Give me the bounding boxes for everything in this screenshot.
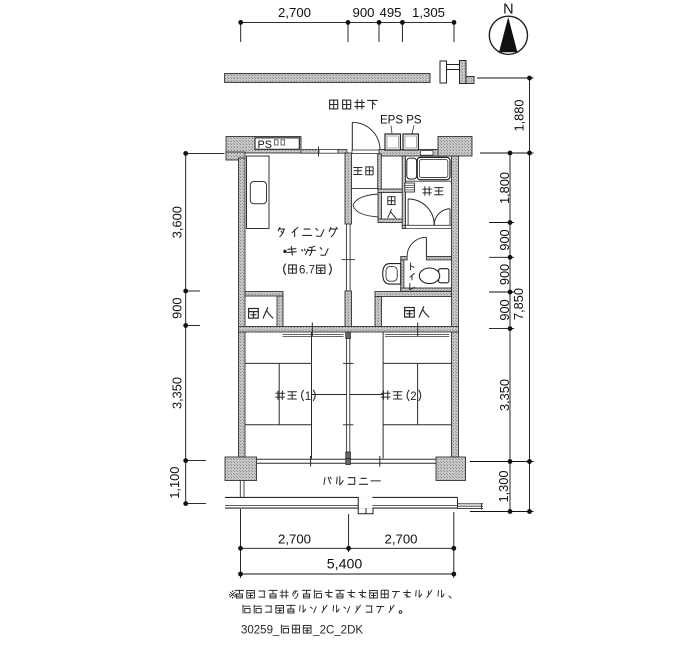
svg-text:1,880: 1,880 xyxy=(512,99,527,131)
svg-text:2,700: 2,700 xyxy=(278,532,311,547)
svg-text:1: 1 xyxy=(305,391,311,403)
svg-text:5,400: 5,400 xyxy=(327,557,363,573)
svg-text:7,850: 7,850 xyxy=(511,288,526,320)
svg-text:3,600: 3,600 xyxy=(170,206,185,238)
svg-text:N: N xyxy=(503,2,513,18)
svg-text:6.7: 6.7 xyxy=(299,265,315,277)
svg-text:900: 900 xyxy=(497,229,512,250)
svg-text:1,100: 1,100 xyxy=(167,467,182,499)
svg-text:2,700: 2,700 xyxy=(278,5,311,20)
svg-text:1,305: 1,305 xyxy=(412,5,445,20)
svg-text:30259_: 30259_ xyxy=(241,625,280,637)
svg-text:1,300: 1,300 xyxy=(496,470,511,502)
svg-text:900: 900 xyxy=(170,298,185,319)
svg-text:3,350: 3,350 xyxy=(497,379,512,411)
svg-text:1,800: 1,800 xyxy=(497,172,512,204)
svg-text:3,350: 3,350 xyxy=(170,377,185,409)
svg-text:495: 495 xyxy=(379,5,401,20)
svg-text:900: 900 xyxy=(352,5,374,20)
svg-text:PS: PS xyxy=(258,139,272,151)
svg-text:EPS PS: EPS PS xyxy=(380,115,422,127)
svg-text:2: 2 xyxy=(410,391,416,403)
svg-text:900: 900 xyxy=(497,264,512,285)
svg-text:_2C_2DK: _2C_2DK xyxy=(312,625,363,637)
svg-text:2,700: 2,700 xyxy=(384,532,417,547)
svg-text:900: 900 xyxy=(497,299,512,320)
